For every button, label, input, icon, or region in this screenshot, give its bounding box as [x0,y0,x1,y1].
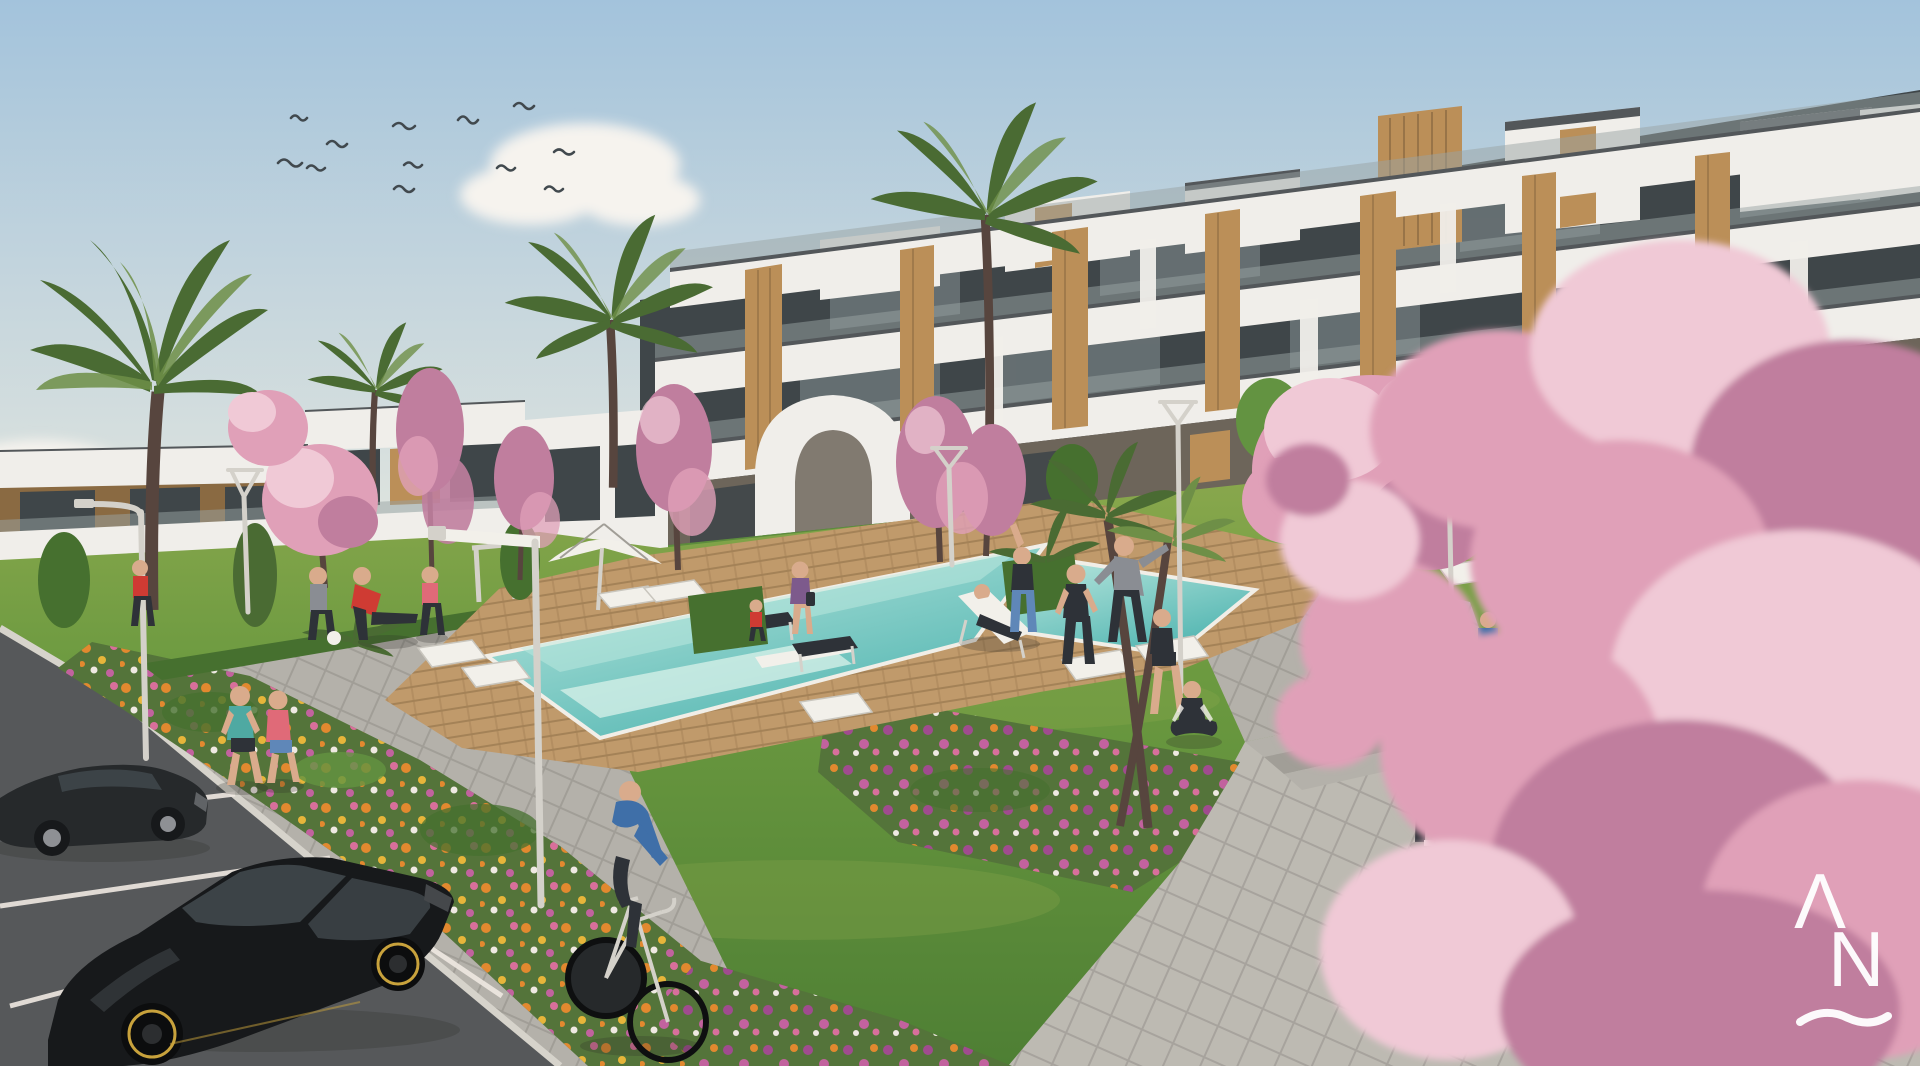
rendering-scene: Λ N [0,0,1920,1066]
scene-canvas [0,0,1920,1066]
bag [806,592,815,606]
ball [327,631,341,645]
logo-wave-icon [1796,1004,1892,1034]
developer-logo-watermark: Λ N [1788,862,1908,1042]
logo-letter-bottom: N [1828,920,1884,998]
